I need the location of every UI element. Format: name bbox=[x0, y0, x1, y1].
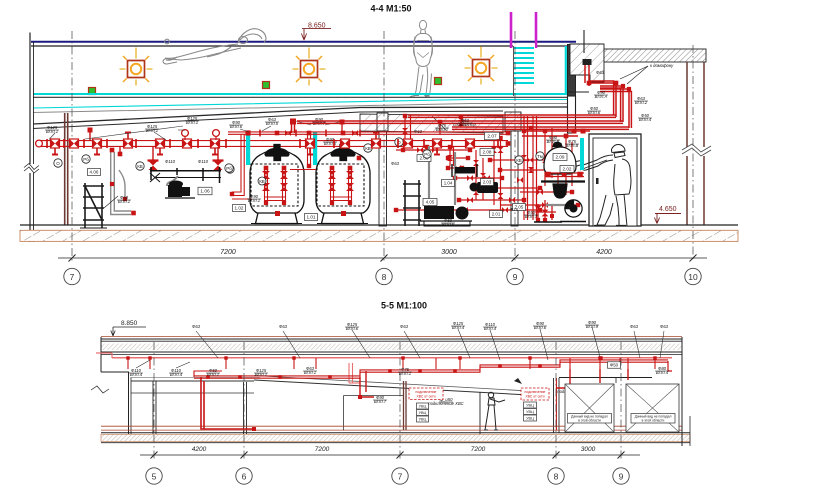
svg-text:КВ: КВ bbox=[259, 179, 265, 184]
svg-text:Ф63: Ф63 bbox=[414, 129, 423, 134]
svg-text:9: 9 bbox=[513, 272, 518, 282]
svg-text:8: 8 bbox=[554, 472, 559, 482]
svg-text:Ф63: Ф63 bbox=[660, 324, 669, 329]
svg-text:2.03: 2.03 bbox=[483, 180, 492, 185]
svg-text:Ф63: Ф63 bbox=[192, 324, 201, 329]
svg-text:УВЦ: УВЦ bbox=[419, 417, 427, 421]
svg-text:7200: 7200 bbox=[220, 249, 236, 256]
svg-text:1.06: 1.06 bbox=[200, 189, 210, 195]
svg-text:УВЦ: УВЦ bbox=[419, 404, 427, 408]
svg-text:4.05: 4.05 bbox=[426, 200, 435, 205]
svg-text:9: 9 bbox=[619, 472, 624, 482]
svg-text:УВЦ: УВЦ bbox=[526, 410, 534, 414]
svg-text:Ф110: Ф110 bbox=[165, 159, 176, 164]
svg-text:Рб: Рб bbox=[424, 152, 430, 157]
svg-text:подключение: подключение bbox=[416, 390, 437, 394]
svg-text:2.02: 2.02 bbox=[563, 167, 572, 172]
svg-text:6: 6 bbox=[242, 472, 247, 482]
svg-text:к домофону: к домофону bbox=[650, 63, 674, 68]
svg-text:в этой области: в этой области bbox=[578, 419, 601, 423]
svg-text:5-5 М1:100: 5-5 М1:100 bbox=[381, 301, 427, 311]
svg-text:3000: 3000 bbox=[581, 446, 596, 453]
svg-text:2.09: 2.09 bbox=[556, 155, 565, 160]
svg-text:Рб: Рб bbox=[226, 166, 232, 171]
svg-text:5: 5 bbox=[152, 472, 157, 482]
svg-text:Ф63: Ф63 bbox=[630, 324, 639, 329]
svg-text:Ф110: Ф110 bbox=[198, 159, 209, 164]
svg-text:4.06: 4.06 bbox=[90, 170, 99, 175]
svg-text:в этой области: в этой области bbox=[642, 419, 665, 423]
svg-text:КВ: КВ bbox=[516, 158, 522, 163]
svg-text:7: 7 bbox=[398, 472, 403, 482]
svg-text:1.01: 1.01 bbox=[307, 215, 316, 220]
svg-text:2.01: 2.01 bbox=[492, 212, 501, 217]
svg-text:Рб: Рб bbox=[83, 157, 89, 162]
svg-text:4200: 4200 bbox=[596, 249, 612, 256]
svg-text:8.850: 8.850 bbox=[121, 320, 138, 327]
svg-text:Ф63: Ф63 bbox=[400, 324, 409, 329]
svg-text:7: 7 bbox=[70, 272, 75, 282]
svg-text:4-4 М1:50: 4-4 М1:50 bbox=[370, 4, 411, 14]
svg-text:УВЦ: УВЦ bbox=[526, 403, 534, 407]
svg-text:КВ: КВ bbox=[137, 164, 143, 169]
svg-text:ХВС от сети: ХВС от сети bbox=[416, 395, 435, 399]
svg-text:2.08: 2.08 bbox=[483, 150, 492, 155]
svg-text:4200: 4200 bbox=[192, 446, 207, 453]
svg-text:Ф63: Ф63 bbox=[279, 324, 288, 329]
svg-text:3000: 3000 bbox=[441, 249, 457, 256]
svg-text:УВЦ: УВЦ bbox=[419, 411, 427, 415]
svg-text:2.07: 2.07 bbox=[487, 134, 497, 140]
svg-text:ХВС от сети: ХВС от сети bbox=[525, 395, 544, 399]
svg-text:8: 8 bbox=[382, 272, 387, 282]
svg-text:7200: 7200 bbox=[315, 446, 330, 453]
svg-text:4.650: 4.650 bbox=[659, 206, 677, 213]
svg-text:10: 10 bbox=[688, 272, 698, 282]
svg-text:подключение: подключение bbox=[525, 390, 546, 394]
svg-text:О: О bbox=[56, 161, 60, 166]
svg-text:Ф50: Ф50 bbox=[610, 363, 619, 368]
svg-text:Ф63: Ф63 bbox=[596, 70, 605, 75]
svg-text:Ф63: Ф63 bbox=[391, 161, 400, 166]
svg-text:КВ: КВ bbox=[365, 146, 371, 151]
svg-text:1.02: 1.02 bbox=[235, 206, 244, 211]
svg-text:7200: 7200 bbox=[471, 446, 486, 453]
svg-text:1.04: 1.04 bbox=[444, 181, 453, 186]
svg-text:Ф75: Ф75 bbox=[510, 207, 519, 212]
svg-text:Тм: Тм bbox=[537, 154, 543, 159]
svg-text:УВЦ: УВЦ bbox=[526, 416, 534, 420]
